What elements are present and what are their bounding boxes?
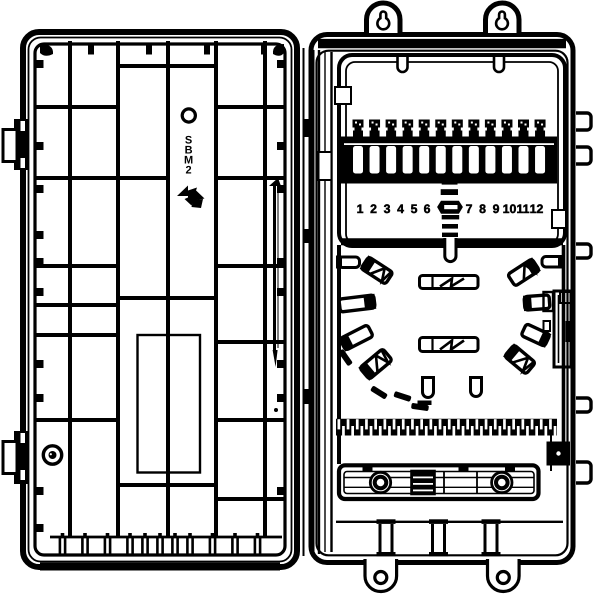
svg-text:12: 12 <box>530 202 544 216</box>
svg-text:11: 11 <box>516 202 529 216</box>
svg-text:9: 9 <box>493 202 500 216</box>
svg-text:2: 2 <box>370 202 377 216</box>
svg-text:10: 10 <box>503 202 517 216</box>
svg-text:3: 3 <box>384 202 391 216</box>
svg-text:5: 5 <box>411 202 418 216</box>
svg-text:7: 7 <box>466 202 473 216</box>
svg-text:4: 4 <box>397 202 404 216</box>
svg-text:6: 6 <box>424 202 431 216</box>
svg-text:8: 8 <box>479 202 486 216</box>
svg-text:1: 1 <box>357 202 364 216</box>
svg-text:2: 2 <box>186 164 192 176</box>
